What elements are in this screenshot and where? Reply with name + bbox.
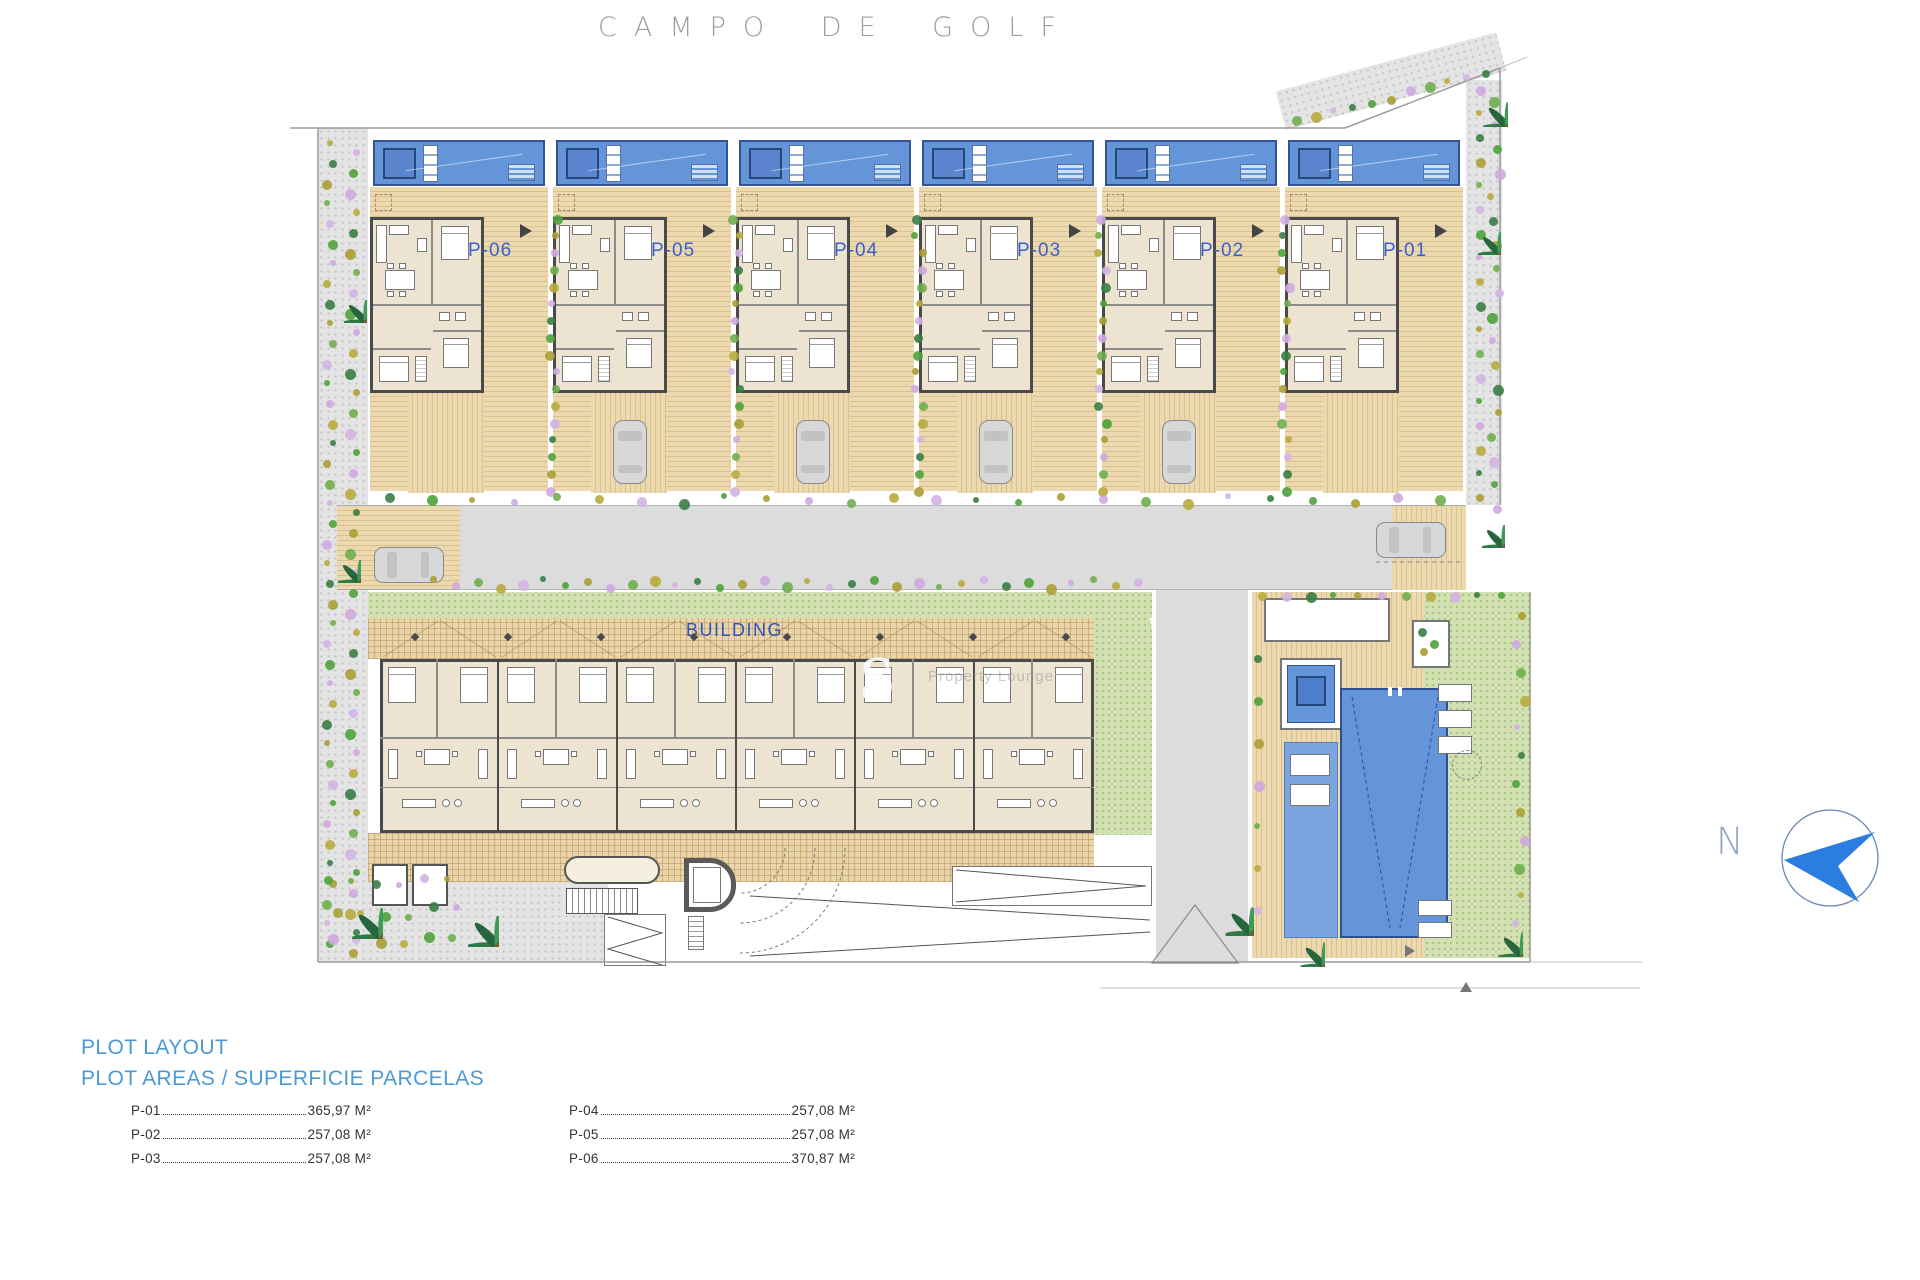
shrub-icon — [732, 300, 739, 307]
shrub-icon — [694, 578, 701, 585]
shrub-icon — [349, 409, 358, 418]
shrub-icon — [430, 576, 437, 583]
shrub-icon — [918, 266, 927, 275]
shrub-icon — [1095, 385, 1103, 393]
shrub-icon — [915, 317, 923, 325]
shrub-icon — [973, 497, 979, 503]
palm-tree-icon — [1473, 907, 1524, 958]
shrub-icon — [1476, 422, 1484, 430]
shrub-icon — [345, 729, 356, 740]
shrub-icon — [919, 402, 928, 411]
palm-tree-icon — [1198, 880, 1253, 935]
shrub-icon — [327, 860, 333, 866]
house-floorplan — [370, 217, 484, 393]
legend-heading-1: PLOT LAYOUT — [81, 1036, 855, 1060]
shrub-icon — [1280, 215, 1290, 225]
shrub-icon — [405, 914, 412, 921]
shrub-icon — [1495, 169, 1506, 180]
shrub-icon — [1090, 576, 1097, 583]
shrub-icon — [545, 351, 555, 361]
shrub-icon — [1134, 578, 1143, 587]
shrub-icon — [595, 495, 604, 504]
shrub-icon — [328, 420, 338, 430]
deck-dashed-square — [375, 194, 392, 211]
building-unit — [975, 659, 1094, 833]
plot-driveway — [408, 393, 484, 493]
north-compass-icon — [1750, 798, 1920, 928]
shrub-icon — [547, 317, 555, 325]
shrub-icon — [353, 869, 360, 876]
private-pool — [922, 140, 1094, 186]
shrub-icon — [552, 385, 560, 393]
legend-row: P-03257,08 M² — [131, 1151, 371, 1166]
shrub-icon — [1393, 493, 1403, 503]
shrub-icon — [1476, 350, 1484, 358]
house-floorplan — [1102, 217, 1216, 393]
shrub-icon — [329, 160, 337, 168]
shrub-icon — [672, 582, 678, 588]
shrub-icon — [511, 499, 518, 506]
shrub-icon — [1098, 334, 1107, 343]
shrub-icon — [1493, 265, 1500, 272]
shrub-icon — [322, 360, 332, 370]
shrub-icon — [1516, 668, 1526, 678]
building-unit — [380, 659, 499, 833]
shrub-icon — [1254, 781, 1265, 792]
shrub-icon — [1254, 697, 1263, 706]
shrub-icon — [1476, 326, 1482, 332]
shrub-icon — [326, 220, 334, 228]
shrub-icon — [1282, 334, 1291, 343]
plot-label: P-02 — [1200, 240, 1244, 262]
shrub-icon — [330, 620, 336, 626]
shrub-icon — [396, 882, 402, 888]
shrub-icon — [1096, 368, 1103, 375]
shrub-icon — [914, 334, 923, 343]
shrub-icon — [1254, 739, 1264, 749]
shrub-icon — [349, 589, 358, 598]
shrub-icon — [330, 440, 336, 446]
shrub-icon — [1476, 134, 1484, 142]
lawn-wrap-east — [1094, 592, 1152, 835]
kids-pool — [1280, 658, 1342, 730]
road-main — [460, 505, 1392, 590]
shrub-icon — [1498, 592, 1505, 599]
entrance-arrow-icon — [520, 224, 532, 238]
plot-p-03: P-03 — [917, 128, 1100, 505]
shrub-icon — [1520, 836, 1530, 846]
shrub-icon — [1101, 283, 1111, 293]
shrub-icon — [549, 283, 559, 293]
palm-tree-icon — [1455, 209, 1501, 255]
shrub-icon — [1024, 578, 1034, 588]
shrub-icon — [1520, 696, 1531, 707]
shrub-icon — [1309, 497, 1317, 505]
shrub-icon — [931, 495, 942, 506]
shrub-icon — [353, 509, 360, 516]
shrub-icon — [1476, 374, 1486, 384]
shrub-icon — [349, 829, 358, 838]
shrub-icon — [325, 480, 335, 490]
shrub-icon — [1495, 409, 1502, 416]
shrub-icon — [345, 429, 356, 440]
sun-lounger — [1438, 710, 1472, 728]
shrub-icon — [848, 580, 856, 588]
shrub-icon — [916, 453, 924, 461]
shrub-icon — [1096, 215, 1106, 225]
shrub-icon — [1354, 592, 1361, 599]
shrub-icon — [353, 269, 360, 276]
palm-tree-icon — [315, 537, 361, 583]
shrub-icon — [518, 580, 529, 591]
entrance-arrow-icon — [1252, 224, 1264, 238]
shrub-icon — [323, 460, 331, 468]
shrub-icon — [679, 499, 690, 510]
shrub-icon — [329, 340, 337, 348]
page-title: CAMPO DE GOLF — [598, 12, 1073, 43]
shrub-icon — [731, 470, 740, 479]
building-label: BUILDING — [686, 620, 783, 641]
shrub-icon — [1512, 640, 1521, 649]
car-icon — [796, 420, 830, 484]
shrub-icon — [1435, 495, 1446, 506]
shrub-icon — [892, 582, 902, 592]
shrub-icon — [917, 436, 924, 443]
shrub-icon — [345, 609, 356, 620]
shrub-icon — [1351, 499, 1360, 508]
shrub-icon — [1094, 402, 1103, 411]
shrub-icon — [1101, 436, 1108, 443]
shrub-icon — [936, 584, 942, 590]
shrub-icon — [1518, 892, 1524, 898]
shrub-icon — [733, 436, 740, 443]
shrub-icon — [912, 368, 919, 375]
shrub-icon — [1489, 337, 1496, 344]
shrub-icon — [553, 368, 560, 375]
shrub-icon — [326, 760, 334, 768]
shrub-icon — [1095, 232, 1102, 239]
shrub-icon — [1015, 499, 1022, 506]
car-icon — [1376, 522, 1446, 558]
legend-row: P-01365,97 M² — [131, 1103, 371, 1118]
shrub-icon — [911, 232, 918, 239]
shrub-icon — [1491, 481, 1498, 488]
shrub-icon — [444, 876, 450, 882]
shrub-icon — [1279, 385, 1287, 393]
shrub-icon — [496, 584, 506, 594]
shrub-icon — [637, 497, 647, 507]
shrub-icon — [763, 495, 770, 502]
shrub-icon — [1099, 317, 1107, 325]
house-floorplan — [919, 217, 1033, 393]
plot-driveway — [1323, 393, 1399, 493]
building-unit — [618, 659, 737, 833]
palm-tree-icon — [321, 277, 367, 323]
building-unit — [499, 659, 618, 833]
shrub-icon — [548, 453, 556, 461]
shrub-icon — [353, 149, 360, 156]
shrub-icon — [1430, 640, 1439, 649]
shrub-icon — [1100, 453, 1108, 461]
shrub-icon — [349, 229, 358, 238]
shrub-icon — [730, 487, 740, 497]
shrub-icon — [553, 493, 561, 501]
shrub-icon — [1284, 300, 1291, 307]
plot-p-05: P-05 — [551, 128, 734, 505]
shrub-icon — [324, 740, 330, 746]
house-floorplan — [553, 217, 667, 393]
shrub-icon — [345, 849, 356, 860]
plot-label: P-06 — [468, 240, 512, 262]
shrub-icon — [734, 266, 743, 275]
shrub-icon — [1330, 108, 1336, 114]
shrub-icon — [353, 209, 360, 216]
shrub-icon — [548, 300, 555, 307]
shrub-icon — [729, 351, 739, 361]
shrub-icon — [584, 578, 592, 586]
shrub-icon — [1285, 283, 1295, 293]
shrub-icon — [345, 369, 356, 380]
shrub-icon — [1512, 780, 1520, 788]
private-pool — [739, 140, 911, 186]
shrub-icon — [328, 240, 338, 250]
shrub-icon — [1097, 351, 1107, 361]
shrub-icon — [1311, 112, 1322, 123]
shrub-icon — [1491, 361, 1500, 370]
shrub-icon — [1476, 158, 1486, 168]
shrub-icon — [1283, 317, 1291, 325]
shrub-icon — [1277, 266, 1286, 275]
shrub-icon — [1046, 584, 1057, 595]
deck-dashed-square — [1290, 194, 1307, 211]
shrub-icon — [980, 576, 988, 584]
shrub-icon — [1487, 433, 1496, 442]
shrub-icon — [1002, 582, 1011, 591]
shrub-icon — [736, 385, 744, 393]
shrub-icon — [551, 402, 560, 411]
shrub-icon — [345, 669, 356, 680]
shrub-icon — [912, 215, 922, 225]
shrub-icon — [1282, 592, 1292, 602]
shrub-icon — [1514, 864, 1525, 875]
shrub-icon — [1254, 823, 1260, 829]
shrub-icon — [349, 169, 358, 178]
building-unit — [737, 659, 856, 833]
palm-tree-icon — [321, 877, 383, 939]
shrub-icon — [329, 700, 337, 708]
shrub-icon — [735, 249, 743, 257]
shrub-icon — [1284, 453, 1292, 461]
shrub-icon — [327, 140, 333, 146]
shrub-icon — [325, 660, 335, 670]
lawn-strip — [368, 592, 1152, 618]
shrub-icon — [1102, 266, 1111, 275]
sun-lounger — [1290, 784, 1330, 806]
shrub-icon — [325, 840, 335, 850]
shrub-icon — [1476, 446, 1486, 456]
legend-heading-2: PLOT AREAS / SUPERFICIE PARCELAS — [81, 1067, 855, 1091]
sun-lounger — [1438, 684, 1472, 702]
shrub-icon — [1476, 302, 1486, 312]
plot-label: P-04 — [834, 240, 878, 262]
watermark-logo: S — [860, 648, 894, 710]
shrub-icon — [958, 580, 965, 587]
shrub-icon — [1476, 278, 1484, 286]
shrub-icon — [913, 351, 923, 361]
shrub-icon — [550, 266, 559, 275]
plot-p-04: P-04 — [734, 128, 917, 505]
shrub-icon — [870, 576, 879, 585]
palm-tree-icon — [1459, 502, 1505, 548]
shrub-icon — [330, 260, 336, 266]
legend-row: P-05257,08 M² — [569, 1127, 855, 1142]
sun-lounger — [1290, 754, 1330, 776]
shrub-icon — [919, 249, 927, 257]
shrub-icon — [914, 578, 925, 589]
shrub-icon — [1518, 752, 1525, 759]
shrub-icon — [736, 232, 743, 239]
compass-north-label: N — [1716, 820, 1744, 863]
shrub-icon — [1285, 436, 1292, 443]
shrub-icon — [1402, 592, 1411, 601]
sun-lounger — [1418, 922, 1452, 938]
shrub-icon — [353, 449, 360, 456]
shrub-icon — [728, 368, 735, 375]
shrub-icon — [1279, 232, 1286, 239]
shrub-icon — [1099, 470, 1108, 479]
shrub-icon — [1292, 116, 1302, 126]
shrub-icon — [1277, 419, 1287, 429]
shrub-icon — [1476, 182, 1482, 188]
legend-row: P-04257,08 M² — [569, 1103, 855, 1118]
shrub-icon — [550, 419, 560, 429]
shrub-icon — [1330, 592, 1336, 598]
stairs-small — [688, 916, 704, 950]
car-icon — [1162, 420, 1196, 484]
shrub-icon — [353, 809, 360, 816]
shrub-icon — [738, 580, 747, 589]
palm-tree-icon — [1275, 917, 1326, 968]
legend-column-1: P-01365,97 M² P-02257,08 M² P-03257,08 M… — [131, 1103, 371, 1166]
car-icon — [613, 420, 647, 484]
shrub-icon — [628, 580, 638, 590]
legend-row: P-02257,08 M² — [131, 1127, 371, 1142]
shrub-icon — [804, 578, 810, 584]
shrub-icon — [327, 500, 333, 506]
shrub-icon — [1516, 808, 1525, 817]
shrub-icon — [760, 576, 770, 586]
shrub-icon — [329, 520, 337, 528]
shrub-icon — [376, 938, 387, 949]
shrub-icon — [328, 780, 338, 790]
deck-dashed-square — [558, 194, 575, 211]
watermark-text: Property Lounge — [928, 668, 1054, 685]
shrub-icon — [1493, 385, 1504, 396]
shrub-icon — [546, 334, 555, 343]
shrub-icon — [345, 189, 356, 200]
shrub-icon — [1487, 193, 1494, 200]
shrub-icon — [733, 283, 743, 293]
shrub-icon — [1112, 582, 1120, 590]
shrub-icon — [353, 749, 360, 756]
shrub-icon — [731, 317, 739, 325]
shrub-icon — [1094, 249, 1102, 257]
shrub-icon — [1280, 368, 1287, 375]
shrub-icon — [326, 400, 334, 408]
shrub-icon — [1450, 592, 1461, 603]
shrub-icon — [562, 582, 569, 589]
deck-dashed-square — [924, 194, 941, 211]
private-pool — [1105, 140, 1277, 186]
shrub-icon — [1387, 96, 1396, 105]
shrub-icon — [349, 769, 358, 778]
shrub-icon — [1283, 470, 1292, 479]
plot-p-06: P-06 — [368, 128, 551, 505]
shrub-icon — [1100, 300, 1107, 307]
shrub-icon — [345, 249, 356, 260]
pergola — [1264, 598, 1390, 642]
plot-p-01: P-01 — [1283, 128, 1466, 505]
shrub-icon — [1254, 865, 1261, 872]
shrub-icon — [911, 385, 919, 393]
shrub-icon — [1281, 351, 1291, 361]
shrub-icon — [1406, 86, 1416, 96]
shrub-icon — [916, 300, 923, 307]
car-icon — [979, 420, 1013, 484]
shrub-icon — [324, 200, 330, 206]
shrub-icon — [805, 497, 813, 505]
shrub-icon — [1514, 724, 1520, 730]
shrub-icon — [728, 215, 738, 225]
shrub-icon — [650, 576, 661, 587]
shrub-icon — [1254, 655, 1262, 663]
shrub-icon — [1493, 145, 1502, 154]
shrub-icon — [1425, 82, 1436, 93]
shrub-icon — [324, 380, 330, 386]
shrub-icon — [1278, 402, 1287, 411]
shrub-icon — [918, 419, 928, 429]
shrub-icon — [349, 949, 358, 958]
site-plan-canvas: CAMPO DE GOLF P-06P-05P-04P-03P-02P-01 B… — [0, 0, 1920, 1280]
shrub-icon — [349, 709, 358, 718]
shrub-icon — [400, 940, 408, 948]
shrub-icon — [1476, 470, 1482, 476]
palm-tree-icon — [1458, 77, 1509, 128]
plot-label: P-05 — [651, 240, 695, 262]
shrub-icon — [1349, 104, 1356, 111]
shrub-icon — [1476, 398, 1482, 404]
shrub-icon — [1420, 648, 1428, 656]
shrub-icon — [782, 582, 793, 593]
shrub-icon — [1476, 494, 1484, 502]
shrub-icon — [734, 419, 744, 429]
shrub-icon — [385, 493, 395, 503]
shrub-icon — [730, 334, 739, 343]
shrub-icon — [551, 249, 559, 257]
shrub-icon — [1474, 592, 1480, 598]
legend-row: P-06370,87 M² — [569, 1151, 855, 1166]
shrub-icon — [847, 499, 856, 508]
shrub-icon — [1278, 249, 1286, 257]
shrub-icon — [1368, 100, 1376, 108]
shrub-icon — [826, 584, 833, 591]
shrub-icon — [345, 489, 356, 500]
shrub-icon — [327, 680, 333, 686]
shrub-icon — [1489, 457, 1500, 468]
shrub-icon — [1141, 497, 1151, 507]
shrub-icon — [322, 720, 332, 730]
plot-label: P-01 — [1383, 240, 1427, 262]
